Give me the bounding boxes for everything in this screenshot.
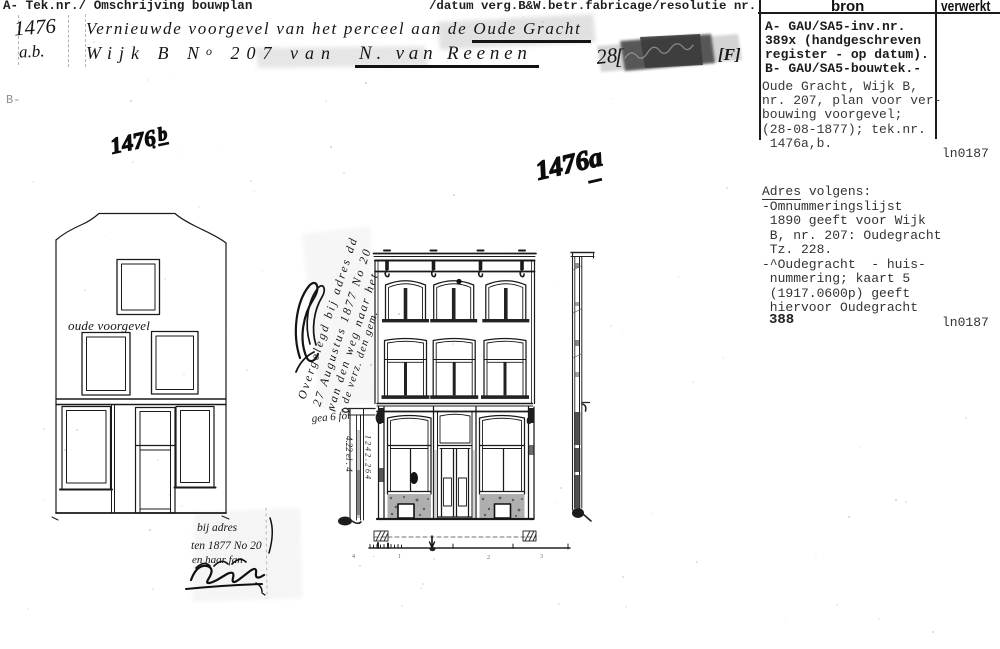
svg-text:gea 6 fol: gea 6 fol [311, 410, 350, 425]
svg-text:1 2 4 2 . 2 6 4: 1 2 4 2 . 2 6 4 [364, 435, 373, 479]
svg-text:1476: 1476 [108, 125, 159, 159]
svg-text:[: [ [615, 44, 625, 69]
svg-text:ten 1877 No 20: ten 1877 No 20 [191, 540, 262, 552]
svg-text:1476a: 1476a [533, 141, 606, 185]
svg-text:[F]: [F] [718, 45, 741, 64]
svg-text:4: 4 [352, 554, 355, 560]
svg-text:.: . [373, 553, 375, 559]
svg-text:1: 1 [398, 554, 401, 560]
svg-text:bij adres: bij adres [197, 522, 238, 534]
svg-text:4.22 el . 4: 4.22 el . 4 [344, 436, 354, 472]
svg-text:oude voorgevel: oude voorgevel [68, 318, 150, 333]
svg-text:2: 2 [487, 555, 490, 561]
svg-text:3: 3 [540, 554, 543, 560]
